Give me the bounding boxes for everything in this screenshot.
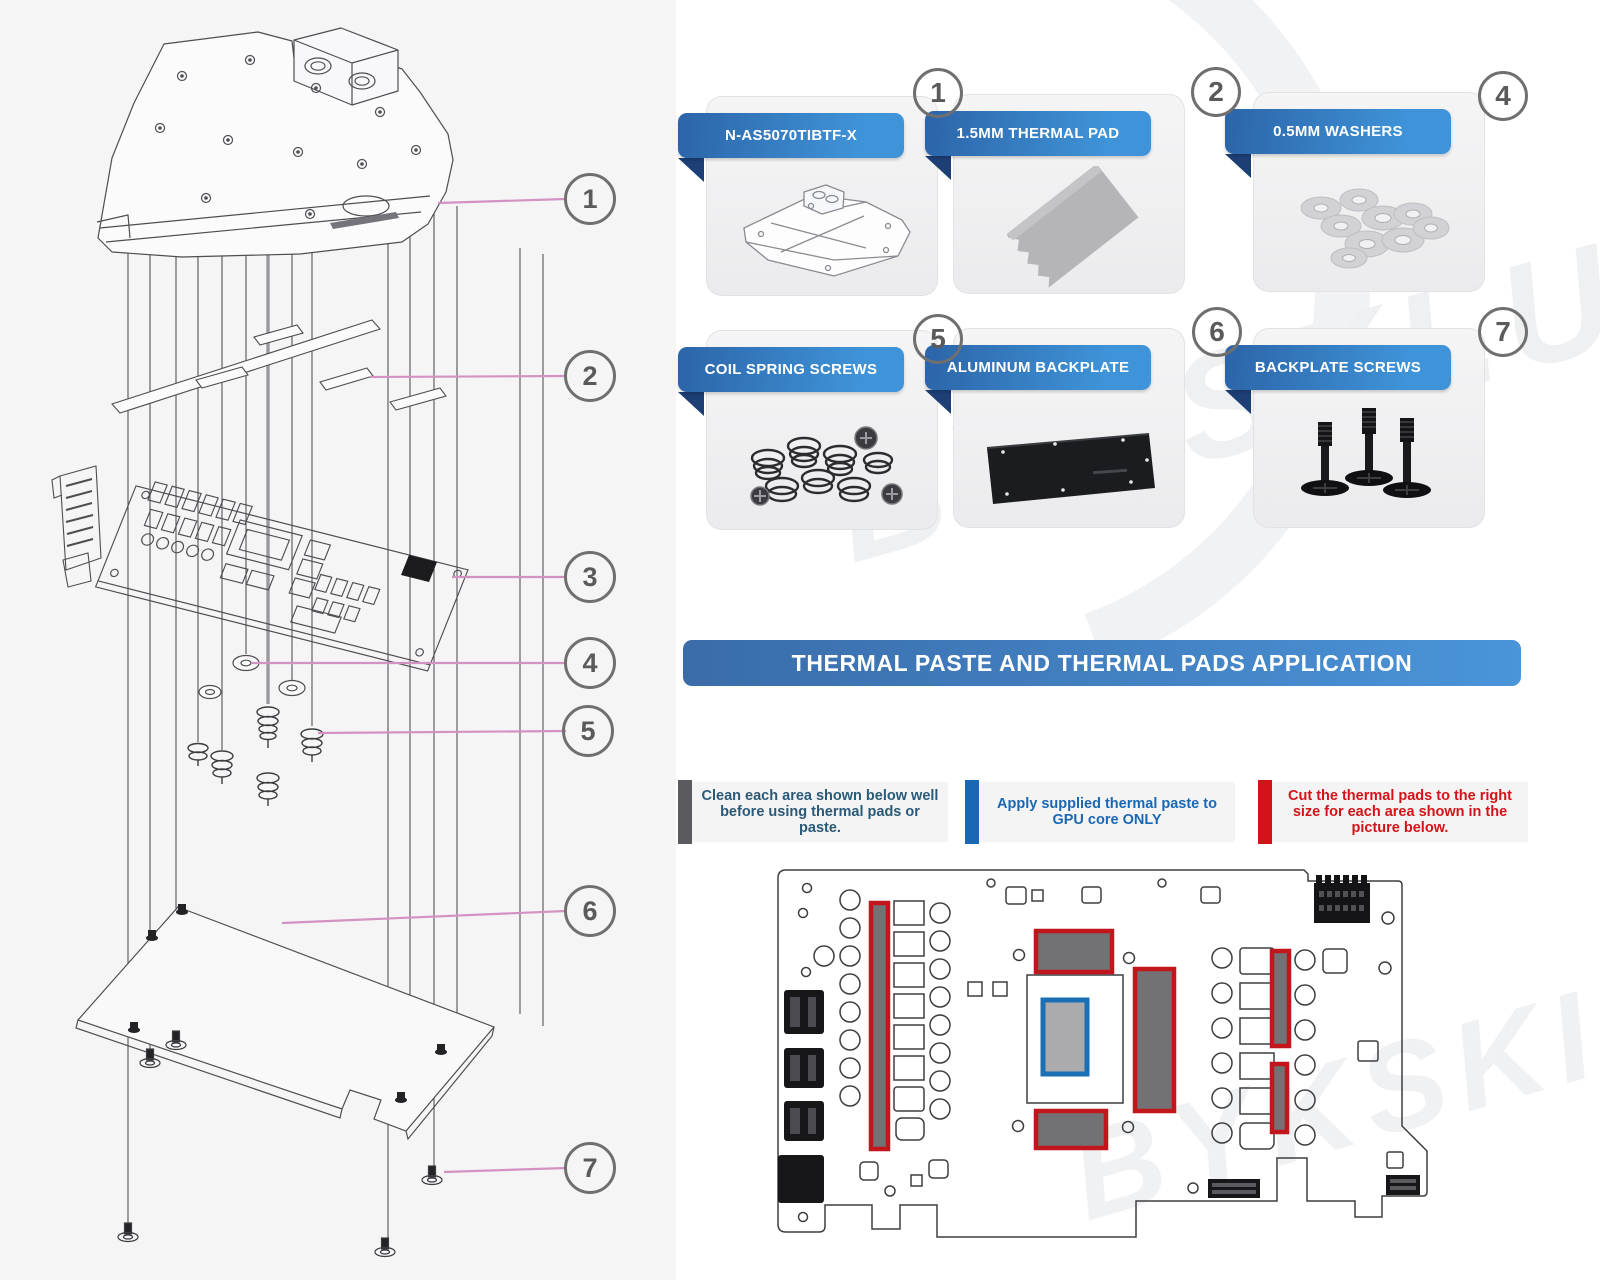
part-number-badge-1: 1 [913, 68, 963, 118]
power-connector [1314, 875, 1370, 923]
part-label-ribbon: N-AS5070TIBTF-X [678, 113, 904, 158]
pcb-thermal-application-diagram [770, 845, 1450, 1265]
callout-number-5: 5 [562, 705, 614, 757]
part-number-badge-4: 4 [1478, 71, 1528, 121]
section-title-banner: THERMAL PASTE AND THERMAL PADS APPLICATI… [683, 640, 1521, 686]
part-card-backplate-screws: BACKPLATE SCREWS [1253, 328, 1485, 528]
part-card-thermal-pad: 1.5MM THERMAL PAD [953, 94, 1185, 294]
instruction-sheet: BYKSKI.US BYKSKI.US [0, 0, 1600, 1280]
callout-number-2: 2 [564, 350, 616, 402]
ribbon-fold [678, 392, 704, 416]
part-number-badge-5: 5 [913, 314, 963, 364]
note-text: Cut the thermal pads to the right size f… [1272, 782, 1528, 842]
part-label-ribbon: 0.5MM WASHERS [1225, 109, 1451, 154]
water-block-drawing [97, 28, 453, 257]
gpu-pcb-drawing [52, 466, 471, 671]
note-accent-bar-red [1258, 780, 1272, 844]
aluminum-backplate-illustration [963, 400, 1175, 522]
ribbon-fold [1225, 390, 1251, 414]
callout-number-4: 4 [564, 637, 616, 689]
pin-header-connectors [1208, 1175, 1420, 1198]
note-text: Apply supplied thermal paste to GPU core… [979, 782, 1235, 842]
part-label-ribbon: BACKPLATE SCREWS [1225, 345, 1451, 390]
callout-number-6: 6 [564, 885, 616, 937]
part-label-ribbon: 1.5MM THERMAL PAD [925, 111, 1151, 156]
note-accent-bar-blue [965, 780, 979, 844]
display-connectors [778, 990, 824, 1203]
part-number-badge-2: 2 [1191, 67, 1241, 117]
left-vrm-mosfets [894, 901, 924, 1140]
right-vrm-caps [1295, 950, 1315, 1145]
ribbon-fold [925, 156, 951, 180]
callout-number-7: 7 [564, 1142, 616, 1194]
washers-illustration [1263, 164, 1475, 286]
callout-number-3: 3 [564, 551, 616, 603]
thermal-pad-strips-drawing [112, 320, 446, 413]
spring-screws-drawing [188, 707, 323, 806]
note-text: Clean each area shown below well before … [692, 782, 948, 842]
coil-spring-screws-illustration [716, 402, 928, 524]
part-number-badge-6: 6 [1192, 307, 1242, 357]
right-vrm-chokes [1212, 948, 1232, 1143]
part-label-ribbon: COIL SPRING SCREWS [678, 347, 904, 392]
water-block-illustration [716, 168, 928, 290]
note-accent-bar-gray [678, 780, 692, 844]
ribbon-fold [1225, 154, 1251, 178]
backplate-drawing [76, 904, 494, 1139]
right-vrm-mosfets [1240, 948, 1274, 1149]
callout-number-1: 1 [564, 173, 616, 225]
gpu-core-paste-area [1043, 1000, 1087, 1074]
ribbon-fold [925, 390, 951, 414]
part-card-aluminum-backplate: ALUMINUM BACKPLATE [953, 328, 1185, 528]
exploded-assembly-panel: 1 2 3 4 5 6 7 [0, 0, 676, 1280]
part-number-badge-7: 7 [1478, 307, 1528, 357]
part-card-washers: 0.5MM WASHERS [1253, 92, 1485, 292]
part-card-coil-spring-screws: COIL SPRING SCREWS [706, 330, 938, 530]
backplate-screws-illustration [1263, 400, 1475, 522]
left-vrm-chokes [930, 903, 950, 1119]
part-card-water-block: N-AS5070TIBTF-X [706, 96, 938, 296]
ribbon-fold [678, 158, 704, 182]
thermal-pad-illustration [963, 166, 1175, 288]
